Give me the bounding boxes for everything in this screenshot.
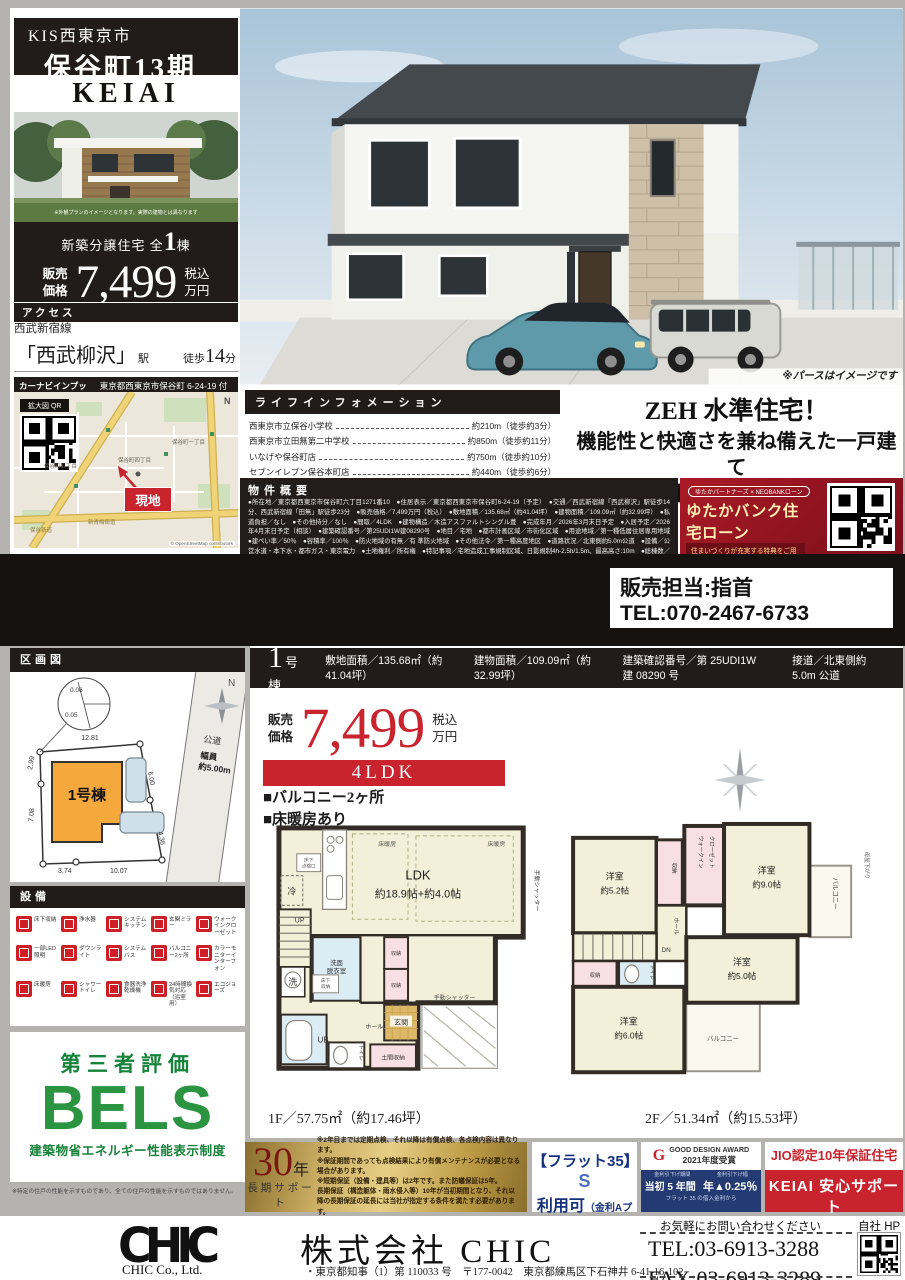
thirty-notes: ※2年目までは定期点検、それ以降は有償点検、各点検内容は異なります。※保証期間で… bbox=[317, 1136, 527, 1218]
gd-tag1: 金利引下げ期間 bbox=[654, 1171, 690, 1178]
plan-compass bbox=[710, 742, 770, 827]
unit-spec: 建築確認番号／第 25UDI1W 建 08290 号 bbox=[623, 653, 767, 683]
lot-dim-bottom1: 3.74 bbox=[58, 868, 72, 875]
equipment-item: 一部LED照明 bbox=[16, 945, 59, 972]
unit-number: 1 bbox=[268, 641, 283, 674]
flat35-title: 【フラット35】 bbox=[532, 1153, 639, 1170]
equipment-label: 浄水器 bbox=[79, 916, 96, 923]
equipment-label: 24時間換気対応（浴室用） bbox=[169, 981, 194, 1008]
gd-year: 2021年度受賞 bbox=[682, 1155, 736, 1165]
layout-badge: 4LDK bbox=[263, 760, 505, 786]
closet-label: 収納 bbox=[391, 950, 401, 957]
life-info-item: 西東京市立保谷小学校約210m（徒歩約3分） bbox=[249, 420, 556, 432]
equipment-item: 浄水器 bbox=[61, 916, 104, 936]
support-30-num: 30 bbox=[253, 1139, 293, 1184]
life-info-distance: 約750m（徒歩約10分） bbox=[467, 451, 556, 463]
equipment-item: システムバス bbox=[106, 945, 149, 972]
equipment-item: 床暖房 bbox=[16, 981, 59, 1008]
window bbox=[439, 256, 487, 296]
room-label: 洋室 bbox=[733, 956, 751, 967]
washroom-label-2: 脱衣室 bbox=[327, 966, 347, 975]
closet-label: 収納 bbox=[589, 971, 600, 979]
unit-price-value: 7,499 bbox=[301, 700, 424, 757]
gd-rate: 年▲0.25％ bbox=[703, 1178, 757, 1194]
wic-label-2: クローゼット bbox=[708, 836, 716, 869]
equipment-label: バルコニー2ヶ所 bbox=[169, 945, 194, 959]
plan-2f-caption: 2F／51.34㎡（約15.53坪） bbox=[645, 1108, 807, 1128]
house bbox=[328, 64, 761, 319]
window bbox=[348, 254, 404, 300]
lot-dim-right2: 4.36 bbox=[156, 831, 166, 846]
equipment-panel: 床下収納浄水器システムキッチン玄関ミラーウォークインクローゼット一部LED照明ダ… bbox=[10, 908, 245, 1026]
company-license: ・東京都知事（1）第 110033 号 〒177-0042 東京都練馬区下石神井… bbox=[305, 1264, 683, 1279]
equipment-icon bbox=[61, 945, 77, 961]
flyer-page: KIS西東京市 保谷町13期 KEIAI GRACE ※外観プランのイメージとな… bbox=[0, 0, 905, 1280]
lot-dim-bottom2: 10.07 bbox=[110, 868, 128, 875]
project-area: KIS西東京市 bbox=[14, 22, 238, 46]
dotted-leader bbox=[353, 443, 465, 444]
equipment-label: 一部LED照明 bbox=[34, 945, 59, 959]
room-size: 約9.0帖 bbox=[752, 880, 781, 890]
floor-heating-label: 床暖房 bbox=[487, 840, 505, 848]
life-info-name: セブンイレブン保谷本町店 bbox=[249, 466, 350, 478]
equipment-item: 床下収納 bbox=[16, 916, 59, 936]
station-name: 「西武柳沢」 bbox=[16, 339, 136, 368]
flat35-avail: 利用可 bbox=[537, 1198, 585, 1215]
moya-label: 母屋下がり bbox=[863, 852, 871, 879]
catch-line: ZEH 水準住宅！ bbox=[570, 396, 903, 429]
sale-label-2: 価格 bbox=[43, 283, 68, 300]
dotted-leader bbox=[336, 428, 469, 429]
washroom-label-1: 洗面 bbox=[330, 958, 343, 967]
price-box: 新築分譲住宅 全1棟 販売価格 7,499 税込万円 bbox=[14, 222, 238, 302]
jio-label: JIO認定10年保証住宅 bbox=[765, 1142, 903, 1170]
hatch-label-2: 点検口 bbox=[302, 863, 316, 870]
rail-line: 西武新宿線 bbox=[14, 320, 238, 336]
dotted-leader bbox=[319, 459, 464, 460]
exterior-photo-illustration: ※外観プランのイメージとなります。実際の建物とは異なります bbox=[14, 112, 238, 222]
tax-label-1: 税込 bbox=[184, 266, 209, 283]
equipment-label: ダウンライト bbox=[79, 945, 104, 959]
sale-label-1: 販売 bbox=[43, 266, 68, 283]
map-town-label: 保谷町一丁目 bbox=[172, 438, 205, 446]
area-map: N 拡大図 QR 保谷町五丁目 保谷町四丁目 保谷町一丁目 新青梅街道 保谷新道… bbox=[14, 392, 238, 548]
life-info-item: 西東京市立田無第二中学校約850m（徒歩約11分） bbox=[249, 435, 556, 447]
map-town-label: 保谷町四丁目 bbox=[118, 456, 151, 464]
lot-dim-left1: 2.99 bbox=[27, 756, 36, 771]
main-visual: ※パースはイメージです bbox=[240, 8, 903, 385]
equipment-item: 食器洗浄乾燥機 bbox=[106, 981, 149, 1008]
life-info-name: いなげや保谷町店 bbox=[249, 451, 316, 463]
contact-band: 販売担当:指首 TEL:070-2467-6733 bbox=[0, 554, 905, 646]
dotted-leader bbox=[353, 474, 469, 475]
equipment-item: バルコニー2ヶ所 bbox=[151, 945, 194, 972]
doma-label: 土間収納 bbox=[381, 1053, 405, 1061]
equipment-title: 設備 bbox=[10, 886, 245, 908]
hall-label: ホール bbox=[365, 1024, 383, 1031]
life-info-item: いなげや保谷町店約750m（徒歩約10分） bbox=[249, 451, 556, 463]
lot-building-label: 1号棟 bbox=[68, 786, 107, 804]
equipment-item: ダウンライト bbox=[61, 945, 104, 972]
closet-label: 収納 bbox=[391, 982, 401, 989]
unit-count: 1 bbox=[164, 227, 177, 256]
site-label: 現地 bbox=[124, 487, 172, 512]
plan-1f-caption: 1F／57.75㎡（約17.46坪） bbox=[268, 1108, 430, 1128]
life-info-distance: 約440m（徒歩約6分） bbox=[472, 466, 556, 478]
window bbox=[454, 138, 520, 208]
map-north-label: N bbox=[224, 396, 231, 406]
footer: CHIC CHIC Co., Ltd. 株式会社 CHIC ・東京都知事（1）第… bbox=[0, 1216, 905, 1280]
equipment-icon bbox=[196, 916, 212, 932]
floor-plan-2f: 洋室 約5.2帖 洋室 約9.0帖 洋室 約5.0帖 洋室 約6.0帖 ウォーク… bbox=[558, 818, 903, 1109]
window bbox=[370, 140, 430, 208]
loan-partners: ゆたかパートナーズ × NEOBANKローン bbox=[688, 486, 810, 497]
lot-detail-dim: 0.05 bbox=[65, 712, 78, 719]
unit-spec: 敷地面積／135.68㎡（約41.04坪） bbox=[325, 653, 448, 683]
floor-heating-label: 床暖房 bbox=[378, 840, 396, 848]
equipment-item: ウォークインクローゼット bbox=[196, 916, 239, 936]
underfloor-label-1: 床下 bbox=[321, 977, 331, 984]
stairs-dn-label: DN bbox=[661, 947, 671, 954]
equipment-label: システムキッチン bbox=[124, 916, 149, 930]
station-row: 「西武柳沢」駅 徒歩14分 bbox=[14, 337, 238, 372]
support-note: ※短期保証（設備・建具等）は2年です。また防蟻保証は5年。 bbox=[317, 1177, 521, 1187]
exterior-photo: ※外観プランのイメージとなります。実際の建物とは異なります bbox=[14, 112, 238, 222]
jio-keiai-box: JIO認定10年保証住宅 KEIAI 安心サポート 別途保証料がかかります bbox=[765, 1142, 903, 1212]
walk-minutes: 14 bbox=[205, 345, 225, 367]
entry-label: 玄関 bbox=[394, 1018, 408, 1027]
equipment-icon bbox=[196, 945, 212, 961]
wic-label-1: ウォークイン bbox=[697, 836, 705, 869]
closet-label: 収納 bbox=[670, 863, 678, 874]
tax-label-2: 万円 bbox=[184, 283, 209, 300]
equipment-item: 24時間換気対応（浴室用） bbox=[151, 981, 194, 1008]
company-name-en: CHIC Co., Ltd. bbox=[122, 1262, 203, 1278]
life-info-title: ライフインフォメーション bbox=[245, 390, 560, 414]
unit-header: 1号棟 敷地面積／135.68㎡（約41.04坪）建物面積／109.09㎡（約3… bbox=[250, 648, 903, 688]
bels-logo: BELS bbox=[10, 1078, 245, 1140]
room-label: 洋室 bbox=[620, 1016, 638, 1027]
lot-detail-dim: 0.06 bbox=[70, 687, 83, 694]
equipment-label: カラーモニターインターフォン bbox=[214, 945, 239, 972]
stairs-up-label: UP bbox=[295, 917, 305, 924]
support-30-unit: 年 bbox=[293, 1162, 309, 1179]
bath-label: UB bbox=[318, 1035, 329, 1044]
catch-line: 機能性と快適さを兼ね備えた一戸建て bbox=[570, 429, 903, 481]
project-header: KIS西東京市 保谷町13期 bbox=[14, 18, 238, 79]
lot-dim-left2: 7.08 bbox=[28, 808, 36, 822]
bels-panel: 第三者評価 BELS 建築物省エネルギー性能表示制度 bbox=[10, 1032, 245, 1182]
gd-term: 当初 5 年間 bbox=[645, 1178, 696, 1193]
footer-telfax: TEL:03-6913-3288 FAX:03-6913-3289 bbox=[648, 1234, 821, 1280]
keiai-support-title: KEIAI 安心サポート bbox=[765, 1175, 903, 1217]
room-ldk: LDK bbox=[405, 868, 430, 883]
unit-count-suffix: 棟 bbox=[177, 238, 191, 253]
unit-spec: 建物面積／109.09㎡（約32.99坪） bbox=[474, 653, 597, 683]
property-overview: 物件概要 ●所在地／東京都西東京市保谷町六丁目1271番10 ●住居表示／東京都… bbox=[240, 478, 678, 554]
lot-plan-title: 区画図 bbox=[10, 648, 245, 672]
good-design-logo: G bbox=[653, 1147, 665, 1165]
bels-subtitle: 建築物省エネルギー性能表示制度 bbox=[10, 1140, 245, 1159]
lot-plan-drawing: 公道 幅員 約5.00m N 1号棟 0.06 0.05 12.81 2.99 bbox=[10, 672, 245, 882]
walk-prefix: 徒歩 bbox=[183, 353, 205, 365]
balcony-label: バルコニー bbox=[831, 878, 839, 910]
equipment-item: シャワートイレ bbox=[61, 981, 104, 1008]
house-render bbox=[240, 8, 903, 385]
gd-tag2: 金利引下げ幅 bbox=[717, 1171, 748, 1178]
loan-box: ゆたかパートナーズ × NEOBANKローン ゆたかバンク住宅ローン 住まいづく… bbox=[680, 478, 903, 554]
station-unit: 駅 bbox=[138, 350, 149, 366]
window bbox=[651, 140, 675, 196]
map-town-label: 保谷町五丁目 bbox=[44, 462, 77, 470]
render-caption: ※パースはイメージです bbox=[783, 368, 897, 383]
washer-label: 洗 bbox=[288, 976, 297, 987]
equipment-label: システムバス bbox=[124, 945, 149, 959]
map-road-label: 保谷新道 bbox=[30, 526, 52, 534]
equipment-label: 床下収納 bbox=[34, 916, 56, 923]
unit-specs: 敷地面積／135.68㎡（約41.04坪）建物面積／109.09㎡（約32.99… bbox=[325, 653, 885, 683]
support-30y-ban: 30年 長期サポート ※2年目までは定期点検、それ以降は有償点検、各点検内容は異… bbox=[245, 1142, 527, 1212]
lot-cars bbox=[120, 758, 164, 833]
support-note: 長期保証（構造躯体・雨水侵入等）10年が当初期間となり、それ以降の長期保証の延長… bbox=[317, 1187, 521, 1218]
underfloor-label-2: 収納 bbox=[321, 983, 331, 990]
equipment-grid: 床下収納浄水器システムキッチン玄関ミラーウォークインクローゼット一部LED照明ダ… bbox=[10, 908, 245, 1016]
loan-title: ゆたかバンク住宅ローン bbox=[680, 499, 805, 543]
toilet-label: トイレ bbox=[357, 1044, 363, 1060]
map-credit: © OpenStreetMap contributors bbox=[169, 541, 235, 546]
gd-box: G GOOD DESIGN AWARD2021年度受賞 金利引下げ期間金利引下げ… bbox=[641, 1142, 761, 1212]
room-label: 洋室 bbox=[606, 871, 624, 882]
lot-north-label: N bbox=[228, 678, 235, 689]
equipment-icon bbox=[106, 981, 122, 997]
equipment-icon bbox=[151, 981, 167, 997]
lot-dim-top: 12.81 bbox=[81, 735, 99, 742]
unit-feature: ■バルコニー2ヶ所 bbox=[263, 788, 384, 810]
equipment-icon bbox=[16, 981, 32, 997]
life-info-item: セブンイレブン保谷本町店約440m（徒歩約6分） bbox=[249, 466, 556, 478]
catch-copy: ZEH 水準住宅！機能性と快適さを兼ね備えた一戸建て収納豊富な間取りは子育て世帯… bbox=[570, 390, 903, 484]
unit-sale-label-1: 販売 bbox=[268, 712, 293, 729]
equipment-label: 玄関ミラー bbox=[169, 916, 194, 930]
equipment-label: 床暖房 bbox=[34, 981, 51, 988]
equipment-item: エコジョーズ bbox=[196, 981, 239, 1008]
balcony bbox=[809, 866, 851, 938]
new-build-lead: 新築分譲住宅 全 bbox=[61, 238, 163, 253]
room-size: 約5.0帖 bbox=[728, 971, 757, 981]
contact-tel: TEL:070-2467-6733 bbox=[620, 602, 883, 626]
equipment-icon bbox=[196, 981, 212, 997]
unit-tax-2: 万円 bbox=[432, 729, 457, 746]
equipment-item: 玄関ミラー bbox=[151, 916, 194, 936]
fence bbox=[796, 242, 900, 310]
brand-name: KEIAI GRACE bbox=[14, 75, 238, 112]
balcony-label: バルコニー bbox=[707, 1034, 739, 1042]
hatch-label-1: 床下 bbox=[304, 857, 314, 864]
unit-sale-label-2: 価格 bbox=[268, 729, 293, 746]
shutter-label: 手動シャッター bbox=[434, 994, 476, 1002]
equipment-icon bbox=[106, 945, 122, 961]
hall-label: ホール bbox=[672, 917, 679, 935]
contact-person: 販売担当:指首 bbox=[620, 572, 883, 602]
unit-price-row: 販売価格 7,499 税込万円 bbox=[268, 700, 457, 757]
life-info-name: 西東京市立保谷小学校 bbox=[249, 420, 333, 432]
lot-plan: 公道 幅員 約5.00m N 1号棟 0.06 0.05 12.81 2.99 bbox=[10, 672, 245, 882]
life-info-name: 西東京市立田無第二中学校 bbox=[249, 435, 350, 447]
fridge-label: 冷 bbox=[287, 885, 296, 896]
contact-box: 販売担当:指首 TEL:070-2467-6733 bbox=[610, 568, 893, 628]
bels-note: ※特定の住戸の性能を示すものであり、全ての住戸の性能を示すものではありません。 bbox=[12, 1186, 244, 1195]
walk-suffix: 分 bbox=[225, 353, 236, 365]
toilet-label: トイレ bbox=[649, 965, 655, 980]
walk-time: 徒歩14分 bbox=[183, 345, 236, 368]
shutter-label: 手動シャッター bbox=[533, 870, 541, 912]
equipment-icon bbox=[61, 981, 77, 997]
equipment-item: カラーモニターインターフォン bbox=[196, 945, 239, 972]
map-road-label: 新青梅街道 bbox=[88, 518, 116, 526]
support-note: ※2年目までは定期点検、それ以降は有償点検、各点検内容は異なります。 bbox=[317, 1136, 521, 1156]
equipment-item: システムキッチン bbox=[106, 916, 149, 936]
price-value: 7,499 bbox=[76, 259, 177, 306]
life-info: ライフインフォメーション 西東京市立保谷小学校約210m（徒歩約3分）西東京市立… bbox=[245, 390, 560, 478]
equipment-icon bbox=[16, 916, 32, 932]
equipment-icon bbox=[61, 916, 77, 932]
life-info-distance: 約850m（徒歩約11分） bbox=[468, 435, 556, 447]
photo-caption: ※外観プランのイメージとなります。実際の建物とは異なります bbox=[54, 209, 197, 216]
gd-award: GOOD DESIGN AWARD bbox=[669, 1145, 749, 1154]
unit-spec: 接道／北東側約 5.0m 公道 bbox=[792, 653, 885, 683]
flat35-box: 【フラット35】S 利用可（金利Aプラン） お申込時手数料がかかります bbox=[532, 1142, 637, 1212]
room-ldk-size: 約18.9帖+約4.0帖 bbox=[375, 886, 461, 900]
room-label: 洋室 bbox=[758, 865, 776, 876]
equipment-icon bbox=[151, 916, 167, 932]
equipment-label: エコジョーズ bbox=[214, 981, 239, 995]
life-info-distance: 約210m（徒歩約3分） bbox=[472, 420, 556, 432]
loan-qr-code bbox=[827, 483, 895, 551]
footer-tel: TEL:03-6913-3288 bbox=[648, 1234, 821, 1264]
footer-qr-code bbox=[857, 1232, 901, 1276]
map-qr-label: 拡大図 QR bbox=[20, 399, 69, 412]
equipment-label: シャワートイレ bbox=[79, 981, 104, 995]
flat35-s: S bbox=[578, 1171, 590, 1191]
equipment-label: ウォークインクローゼット bbox=[214, 916, 239, 936]
gd-note: フラット 35 の借入金利から bbox=[641, 1194, 761, 1202]
equipment-icon bbox=[151, 945, 167, 961]
overview-title: 物件概要 bbox=[248, 482, 670, 498]
floor-plan-1f: LDK 約18.9帖+約4.0帖 床暖房 床暖房 冷 床下 点検口 UP 洗面 … bbox=[266, 818, 556, 1109]
support-30-label: 長期サポート bbox=[245, 1180, 317, 1210]
support-note: ※保証期間であっても点検結果により有償メンテナンスが必要となる場合があります。 bbox=[317, 1157, 521, 1177]
room-size: 約5.2帖 bbox=[601, 885, 630, 895]
room-size: 約6.0帖 bbox=[614, 1030, 643, 1040]
equipment-icon bbox=[16, 945, 32, 961]
equipment-label: 食器洗浄乾燥機 bbox=[124, 981, 149, 995]
unit-tax-1: 税込 bbox=[432, 712, 457, 729]
equipment-icon bbox=[106, 916, 122, 932]
